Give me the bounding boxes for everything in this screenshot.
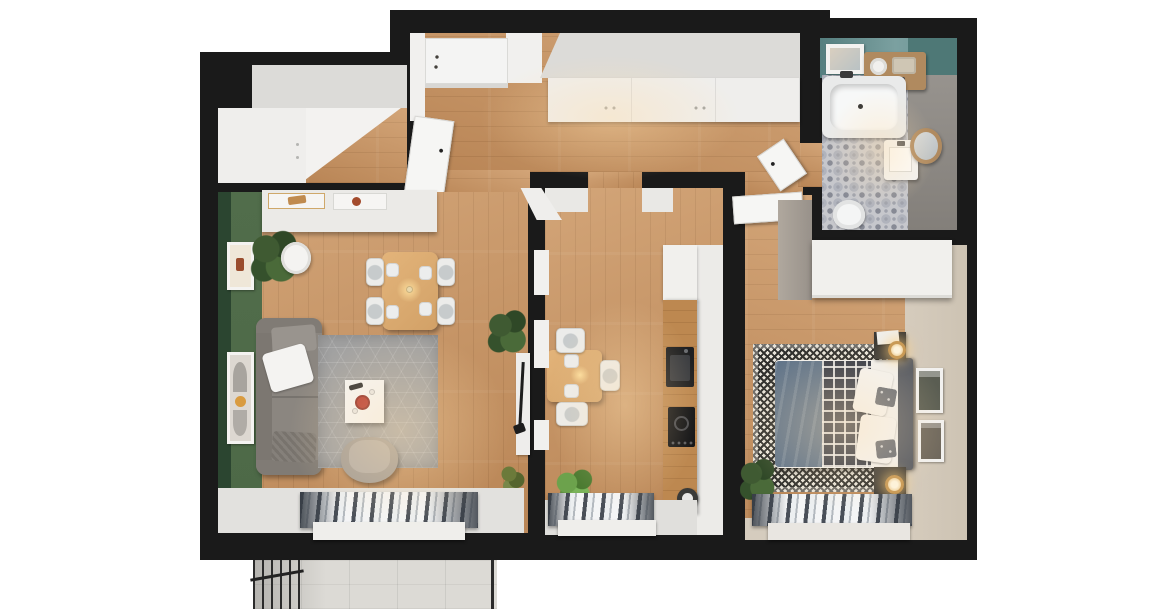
- floor-plan-scene: [0, 0, 1169, 609]
- room-zones: [0, 0, 1169, 609]
- room-balcony: [253, 560, 497, 609]
- room-kitchen: [545, 188, 723, 535]
- room-bedroom: [745, 195, 967, 540]
- room-living-room: [218, 192, 528, 533]
- room-hallway: [418, 33, 800, 172]
- room-closet: [218, 65, 407, 183]
